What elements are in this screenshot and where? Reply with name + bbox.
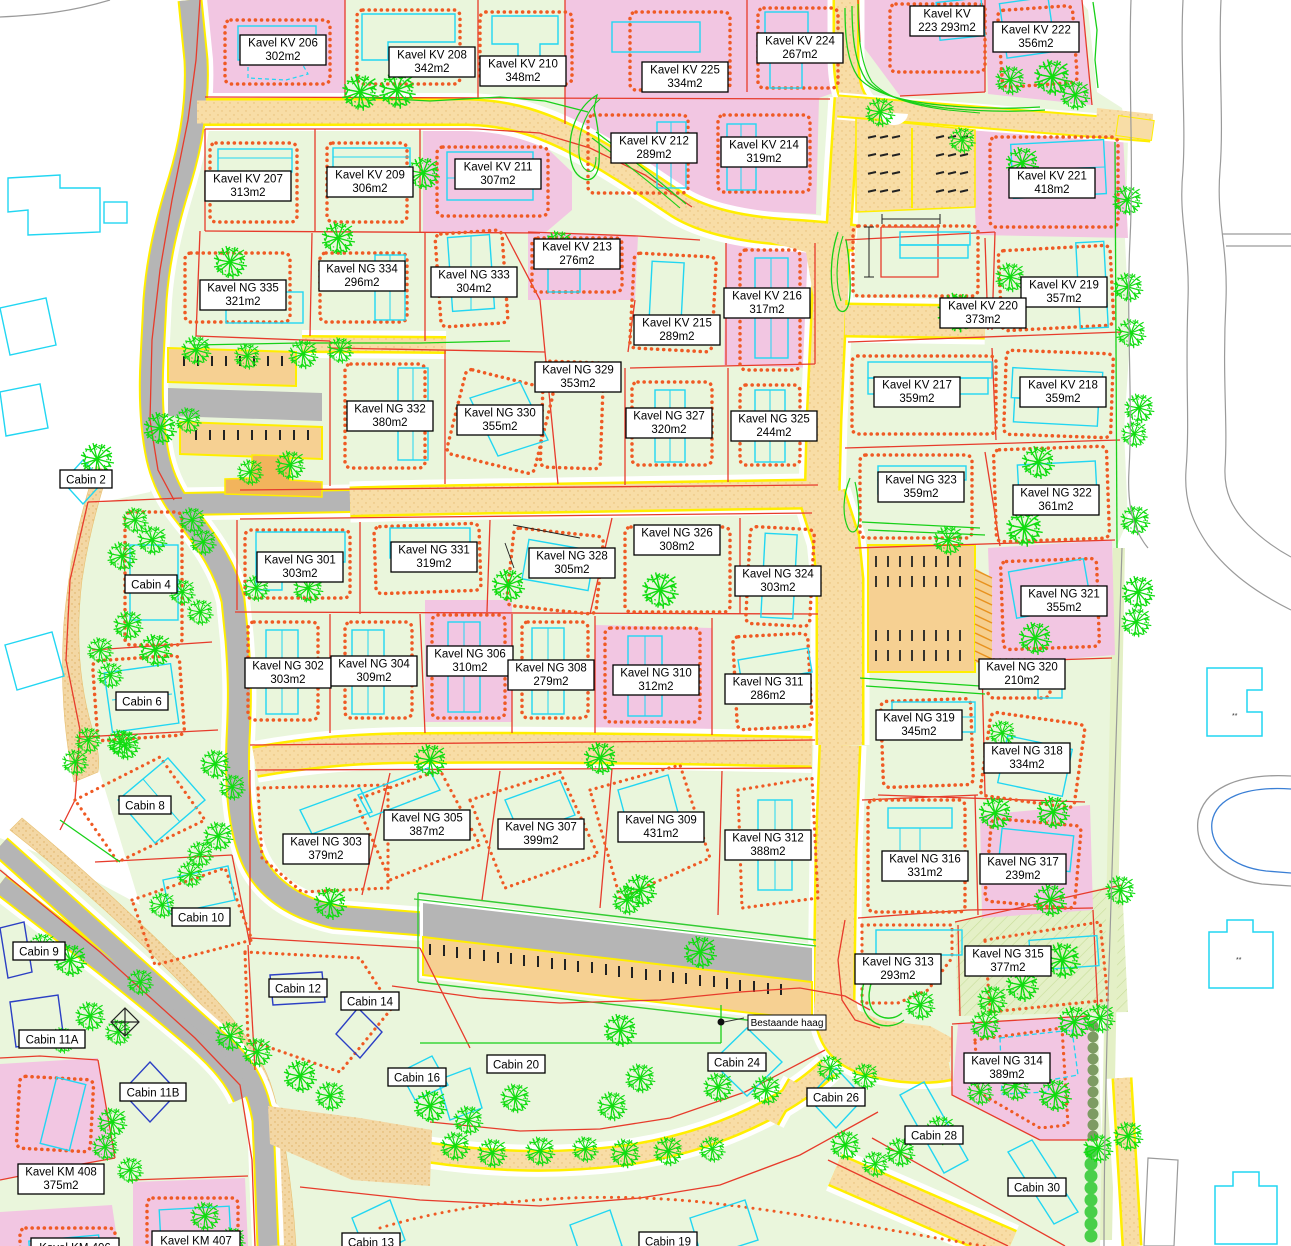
svg-text:223 293m2: 223 293m2 <box>918 22 976 34</box>
svg-text:Kavel KV 218: Kavel KV 218 <box>1028 380 1098 392</box>
svg-text:303m2: 303m2 <box>270 674 305 686</box>
svg-text:304m2: 304m2 <box>456 283 491 295</box>
svg-text:286m2: 286m2 <box>750 690 785 702</box>
svg-text:306m2: 306m2 <box>352 183 387 195</box>
svg-text:Kavel NG 321: Kavel NG 321 <box>1028 589 1100 601</box>
svg-text:Kavel NG 310: Kavel NG 310 <box>620 668 692 680</box>
svg-text:244m2: 244m2 <box>756 427 791 439</box>
svg-text:361m2: 361m2 <box>1038 501 1073 513</box>
svg-text:Kavel NG 305: Kavel NG 305 <box>391 813 463 825</box>
svg-text:388m2: 388m2 <box>750 846 785 858</box>
svg-text:Kavel NG 323: Kavel NG 323 <box>885 475 957 487</box>
svg-text:Kavel KV 217: Kavel KV 217 <box>882 380 952 392</box>
svg-text:Kavel NG 311: Kavel NG 311 <box>733 677 804 689</box>
svg-text:Cabin 20: Cabin 20 <box>493 1060 539 1072</box>
svg-text:Kavel KV: Kavel KV <box>923 9 971 21</box>
svg-text:Kavel KV 209: Kavel KV 209 <box>335 170 405 182</box>
svg-text:389m2: 389m2 <box>989 1069 1024 1081</box>
svg-text:289m2: 289m2 <box>636 149 671 161</box>
svg-text:Kavel KV 210: Kavel KV 210 <box>488 59 558 71</box>
svg-text:Cabin 4: Cabin 4 <box>131 580 171 592</box>
svg-text:355m2: 355m2 <box>482 421 517 433</box>
svg-text:312m2: 312m2 <box>638 681 673 693</box>
svg-text:Kavel NG 303: Kavel NG 303 <box>290 837 362 849</box>
svg-text:331m2: 331m2 <box>907 867 942 879</box>
svg-text:387m2: 387m2 <box>409 826 444 838</box>
svg-text:Kavel NG 327: Kavel NG 327 <box>633 411 705 423</box>
svg-text:Kavel KV 215: Kavel KV 215 <box>642 318 712 330</box>
svg-text:345m2: 345m2 <box>901 726 936 738</box>
svg-text:375m2: 375m2 <box>43 1180 78 1192</box>
svg-text:Kavel NG 315: Kavel NG 315 <box>972 949 1044 961</box>
svg-text:308m2: 308m2 <box>659 541 694 553</box>
svg-text:**: ** <box>1236 957 1242 964</box>
svg-text:356m2: 356m2 <box>1018 38 1053 50</box>
svg-text:Kavel KM 407: Kavel KM 407 <box>160 1236 232 1246</box>
svg-text:Kavel KM 408: Kavel KM 408 <box>25 1167 97 1179</box>
svg-text:Cabin 26: Cabin 26 <box>813 1093 859 1105</box>
svg-text:Cabin 30: Cabin 30 <box>1014 1183 1060 1195</box>
svg-text:313m2: 313m2 <box>230 187 265 199</box>
svg-text:355m2: 355m2 <box>1046 602 1081 614</box>
svg-text:Kavel NG 312: Kavel NG 312 <box>732 833 804 845</box>
svg-text:Kavel KV 213: Kavel KV 213 <box>542 242 612 254</box>
svg-text:Kavel KV 219: Kavel KV 219 <box>1029 280 1099 292</box>
svg-text:Kavel KV 222: Kavel KV 222 <box>1001 25 1071 37</box>
svg-text:303m2: 303m2 <box>282 568 317 580</box>
svg-text:Cabin 10: Cabin 10 <box>178 913 224 925</box>
svg-text:Kavel KV 208: Kavel KV 208 <box>397 50 467 62</box>
svg-text:Cabin 12: Cabin 12 <box>275 984 321 996</box>
svg-text:296m2: 296m2 <box>344 277 379 289</box>
svg-text:Kavel KM 406: Kavel KM 406 <box>39 1243 111 1246</box>
svg-text:276m2: 276m2 <box>559 255 594 267</box>
svg-text:Kavel NG 313: Kavel NG 313 <box>862 957 934 969</box>
svg-text:Kavel NG 308: Kavel NG 308 <box>515 663 587 675</box>
svg-text:267m2: 267m2 <box>782 49 817 61</box>
svg-text:Kavel KV 220: Kavel KV 220 <box>948 301 1018 313</box>
svg-text:379m2: 379m2 <box>308 850 343 862</box>
svg-text:Kavel NG 319: Kavel NG 319 <box>883 713 955 725</box>
svg-text:Kavel NG 332: Kavel NG 332 <box>354 404 426 416</box>
svg-text:Bestaande haag: Bestaande haag <box>751 1018 824 1029</box>
svg-text:Cabin 8: Cabin 8 <box>125 801 165 813</box>
svg-text:239m2: 239m2 <box>1005 870 1040 882</box>
svg-text:Kavel NG 330: Kavel NG 330 <box>464 408 536 420</box>
svg-text:Kavel NG 316: Kavel NG 316 <box>889 854 961 866</box>
svg-text:418m2: 418m2 <box>1034 184 1069 196</box>
svg-text:Kavel NG 309: Kavel NG 309 <box>625 815 697 827</box>
svg-text:334m2: 334m2 <box>1009 759 1044 771</box>
svg-text:380m2: 380m2 <box>372 417 407 429</box>
svg-text:Kavel NG 333: Kavel NG 333 <box>438 270 510 282</box>
svg-text:293m2: 293m2 <box>880 970 915 982</box>
svg-text:Cabin 24: Cabin 24 <box>714 1058 761 1070</box>
svg-text:Kavel NG 302: Kavel NG 302 <box>252 661 324 673</box>
svg-text:279m2: 279m2 <box>533 676 568 688</box>
svg-text:Kavel NG 301: Kavel NG 301 <box>264 555 336 567</box>
svg-text:373m2: 373m2 <box>965 314 1000 326</box>
svg-text:377m2: 377m2 <box>990 962 1025 974</box>
svg-text:319m2: 319m2 <box>416 558 451 570</box>
svg-text:Cabin 19: Cabin 19 <box>645 1237 691 1246</box>
svg-text:Cabin 14: Cabin 14 <box>347 997 394 1009</box>
svg-text:319m2: 319m2 <box>746 153 781 165</box>
svg-text:289m2: 289m2 <box>659 331 694 343</box>
svg-text:Kavel NG 317: Kavel NG 317 <box>987 857 1059 869</box>
svg-text:210m2: 210m2 <box>1004 675 1039 687</box>
svg-text:Cabin 6: Cabin 6 <box>122 697 162 709</box>
svg-text:359m2: 359m2 <box>903 488 938 500</box>
svg-text:348m2: 348m2 <box>505 72 540 84</box>
svg-text:317m2: 317m2 <box>749 304 784 316</box>
svg-text:Cabin 2: Cabin 2 <box>66 475 106 487</box>
svg-text:Kavel KV 212: Kavel KV 212 <box>619 136 689 148</box>
svg-text:Cabin 11A: Cabin 11A <box>26 1035 79 1047</box>
svg-text:Kavel NG 329: Kavel NG 329 <box>542 365 614 377</box>
svg-text:Kavel NG 304: Kavel NG 304 <box>338 659 410 671</box>
svg-text:Kavel KV 211: Kavel KV 211 <box>464 162 533 174</box>
svg-text:320m2: 320m2 <box>651 424 686 436</box>
svg-text:Kavel KV 225: Kavel KV 225 <box>650 65 720 77</box>
svg-text:303m2: 303m2 <box>760 582 795 594</box>
svg-text:353m2: 353m2 <box>560 378 595 390</box>
svg-text:359m2: 359m2 <box>1045 393 1080 405</box>
svg-text:Kavel NG 320: Kavel NG 320 <box>986 662 1058 674</box>
svg-text:Kavel NG 326: Kavel NG 326 <box>641 528 713 540</box>
svg-text:Kavel NG 322: Kavel NG 322 <box>1020 488 1092 500</box>
svg-text:399m2: 399m2 <box>523 835 558 847</box>
svg-text:Kavel NG 334: Kavel NG 334 <box>326 264 398 276</box>
svg-text:Kavel KV 214: Kavel KV 214 <box>729 140 799 152</box>
svg-text:310m2: 310m2 <box>452 662 487 674</box>
svg-text:Kavel KV 206: Kavel KV 206 <box>248 38 318 50</box>
svg-text:Kavel NG 324: Kavel NG 324 <box>742 569 814 581</box>
svg-text:302m2: 302m2 <box>265 51 300 63</box>
svg-text:Kavel NG 328: Kavel NG 328 <box>536 551 608 563</box>
svg-text:Kavel KV 216: Kavel KV 216 <box>732 291 802 303</box>
svg-text:Kavel NG 306: Kavel NG 306 <box>434 649 506 661</box>
svg-text:Cabin 13: Cabin 13 <box>348 1238 394 1246</box>
svg-text:307m2: 307m2 <box>480 175 515 187</box>
svg-text:**: ** <box>1232 713 1238 720</box>
svg-text:Cabin 28: Cabin 28 <box>911 1131 957 1143</box>
svg-text:357m2: 357m2 <box>1046 293 1081 305</box>
svg-text:431m2: 431m2 <box>643 828 678 840</box>
svg-text:Kavel NG 307: Kavel NG 307 <box>505 822 577 834</box>
svg-text:309m2: 309m2 <box>356 672 391 684</box>
svg-text:Kavel KV 207: Kavel KV 207 <box>213 174 283 186</box>
svg-text:359m2: 359m2 <box>899 393 934 405</box>
svg-text:Kavel NG 318: Kavel NG 318 <box>991 746 1063 758</box>
svg-text:Kavel NG 335: Kavel NG 335 <box>207 283 279 295</box>
svg-text:Kavel KV 221: Kavel KV 221 <box>1017 171 1087 183</box>
svg-text:Kavel NG 314: Kavel NG 314 <box>971 1056 1043 1068</box>
svg-text:Kavel NG 331: Kavel NG 331 <box>398 545 470 557</box>
svg-text:Kavel NG 325: Kavel NG 325 <box>738 414 810 426</box>
svg-text:Cabin 9: Cabin 9 <box>19 947 59 959</box>
svg-text:342m2: 342m2 <box>414 63 449 75</box>
svg-text:Cabin 11B: Cabin 11B <box>127 1088 180 1100</box>
svg-text:321m2: 321m2 <box>225 296 260 308</box>
svg-text:305m2: 305m2 <box>554 564 589 576</box>
svg-text:334m2: 334m2 <box>667 78 702 90</box>
svg-text:Kavel KV 224: Kavel KV 224 <box>765 36 835 48</box>
svg-text:Cabin 16: Cabin 16 <box>394 1073 440 1085</box>
